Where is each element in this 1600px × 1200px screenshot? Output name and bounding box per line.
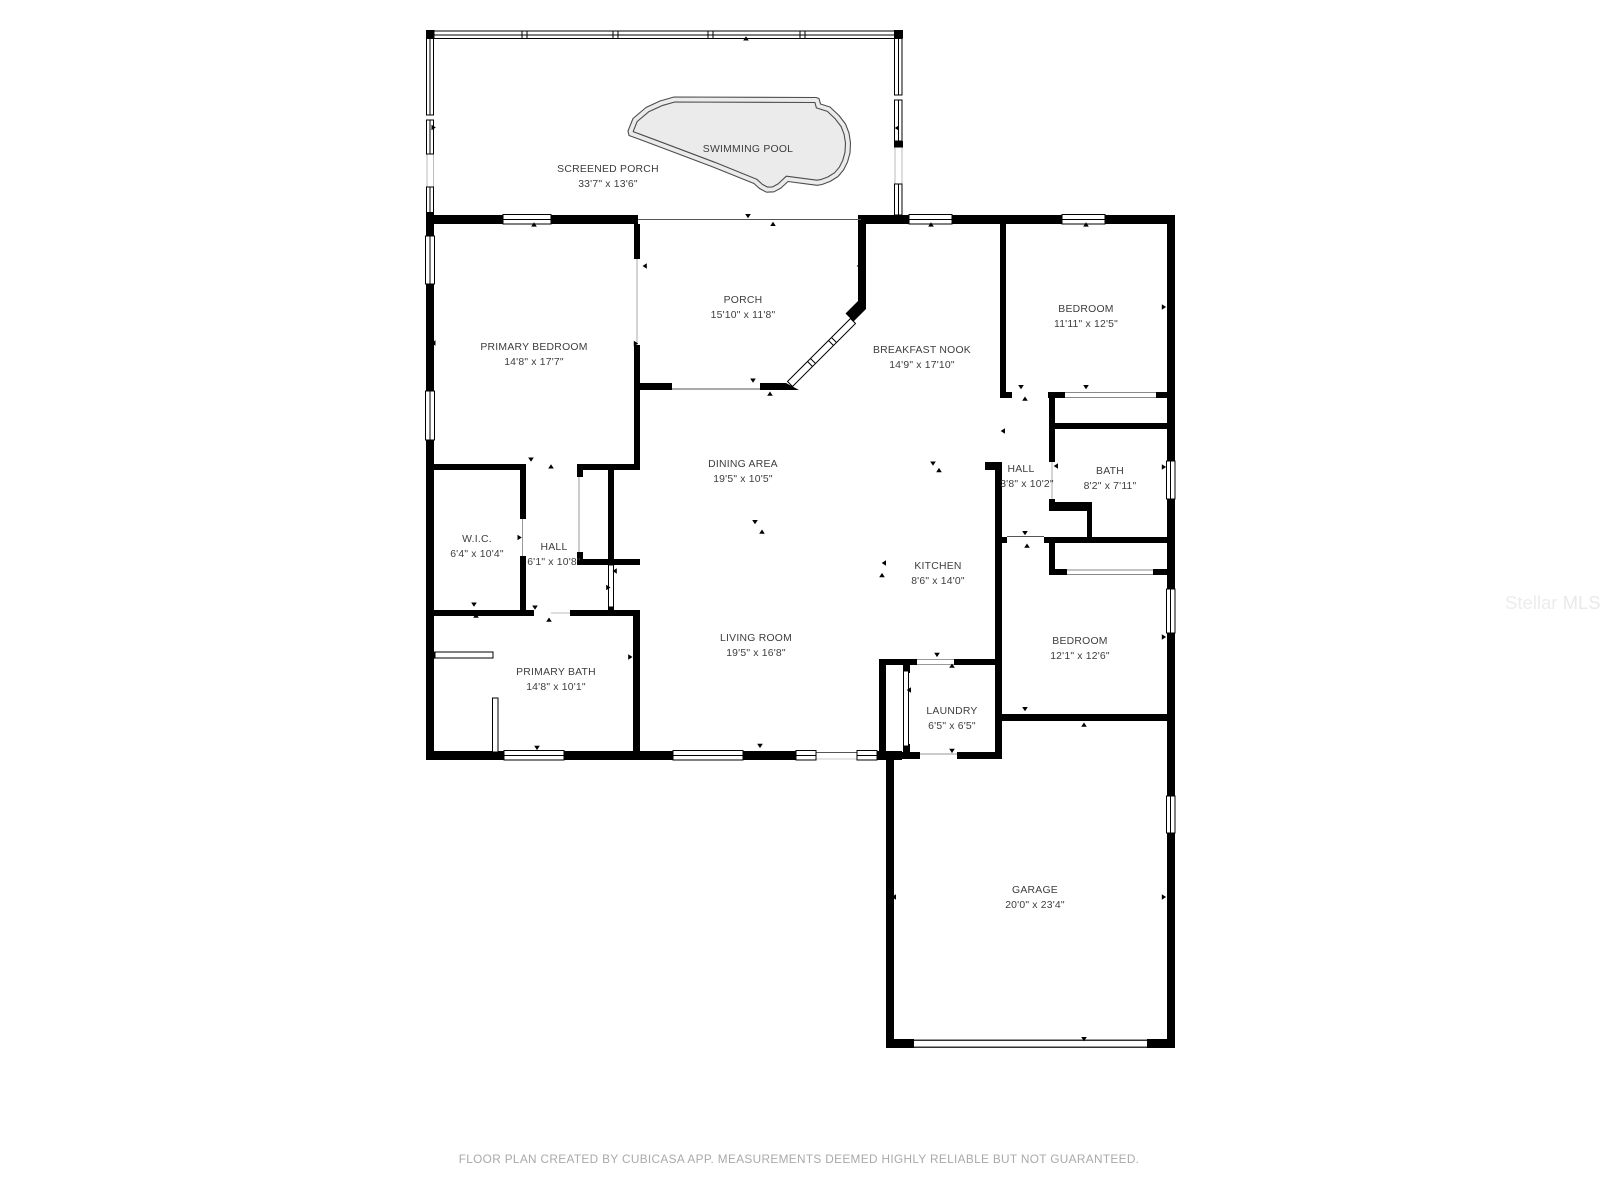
- svg-text:14'8" x 17'7": 14'8" x 17'7": [504, 357, 564, 368]
- svg-text:6'1" x 10'8": 6'1" x 10'8": [527, 557, 581, 568]
- svg-text:15'10" x 11'8": 15'10" x 11'8": [711, 310, 776, 321]
- svg-text:SCREENED PORCH: SCREENED PORCH: [557, 164, 659, 175]
- svg-text:DINING AREA: DINING AREA: [708, 459, 778, 470]
- svg-text:19'5" x 16'8": 19'5" x 16'8": [726, 648, 786, 659]
- svg-text:14'9" x 17'10": 14'9" x 17'10": [889, 360, 955, 371]
- svg-text:14'8" x 10'1": 14'8" x 10'1": [526, 682, 586, 693]
- svg-text:BREAKFAST NOOK: BREAKFAST NOOK: [873, 345, 971, 356]
- svg-text:PRIMARY BATH: PRIMARY BATH: [516, 667, 596, 678]
- svg-text:KITCHEN: KITCHEN: [914, 561, 961, 572]
- svg-text:BEDROOM: BEDROOM: [1052, 636, 1107, 647]
- svg-text:8'2" x 7'11": 8'2" x 7'11": [1084, 481, 1137, 492]
- svg-text:SWIMMING POOL: SWIMMING POOL: [703, 144, 793, 155]
- svg-text:19'5" x 10'5": 19'5" x 10'5": [713, 474, 773, 485]
- svg-text:11'11" x 12'5": 11'11" x 12'5": [1054, 319, 1118, 330]
- svg-text:3'8" x 10'2": 3'8" x 10'2": [1000, 479, 1054, 490]
- svg-text:LIVING ROOM: LIVING ROOM: [720, 633, 792, 644]
- svg-text:BEDROOM: BEDROOM: [1058, 304, 1113, 315]
- svg-text:GARAGE: GARAGE: [1012, 885, 1058, 896]
- svg-text:8'6" x 14'0": 8'6" x 14'0": [911, 576, 965, 587]
- svg-text:BATH: BATH: [1096, 466, 1124, 477]
- svg-text:6'4" x 10'4": 6'4" x 10'4": [450, 549, 504, 560]
- svg-text:PORCH: PORCH: [724, 295, 763, 306]
- svg-text:FLOOR PLAN CREATED BY CUBICASA: FLOOR PLAN CREATED BY CUBICASA APP. MEAS…: [459, 1152, 1140, 1166]
- svg-text:W.I.C.: W.I.C.: [462, 534, 492, 545]
- svg-text:LAUNDRY: LAUNDRY: [926, 706, 977, 717]
- svg-text:33'7" x 13'6": 33'7" x 13'6": [578, 179, 638, 190]
- svg-text:6'5" x 6'5": 6'5" x 6'5": [928, 721, 976, 732]
- svg-text:PRIMARY BEDROOM: PRIMARY BEDROOM: [480, 342, 587, 353]
- svg-text:HALL: HALL: [541, 542, 568, 553]
- svg-text:Stellar MLS: Stellar MLS: [1505, 592, 1600, 613]
- svg-text:20'0" x 23'4": 20'0" x 23'4": [1005, 900, 1065, 911]
- svg-text:12'1" x 12'6": 12'1" x 12'6": [1050, 651, 1110, 662]
- svg-text:HALL: HALL: [1008, 464, 1035, 475]
